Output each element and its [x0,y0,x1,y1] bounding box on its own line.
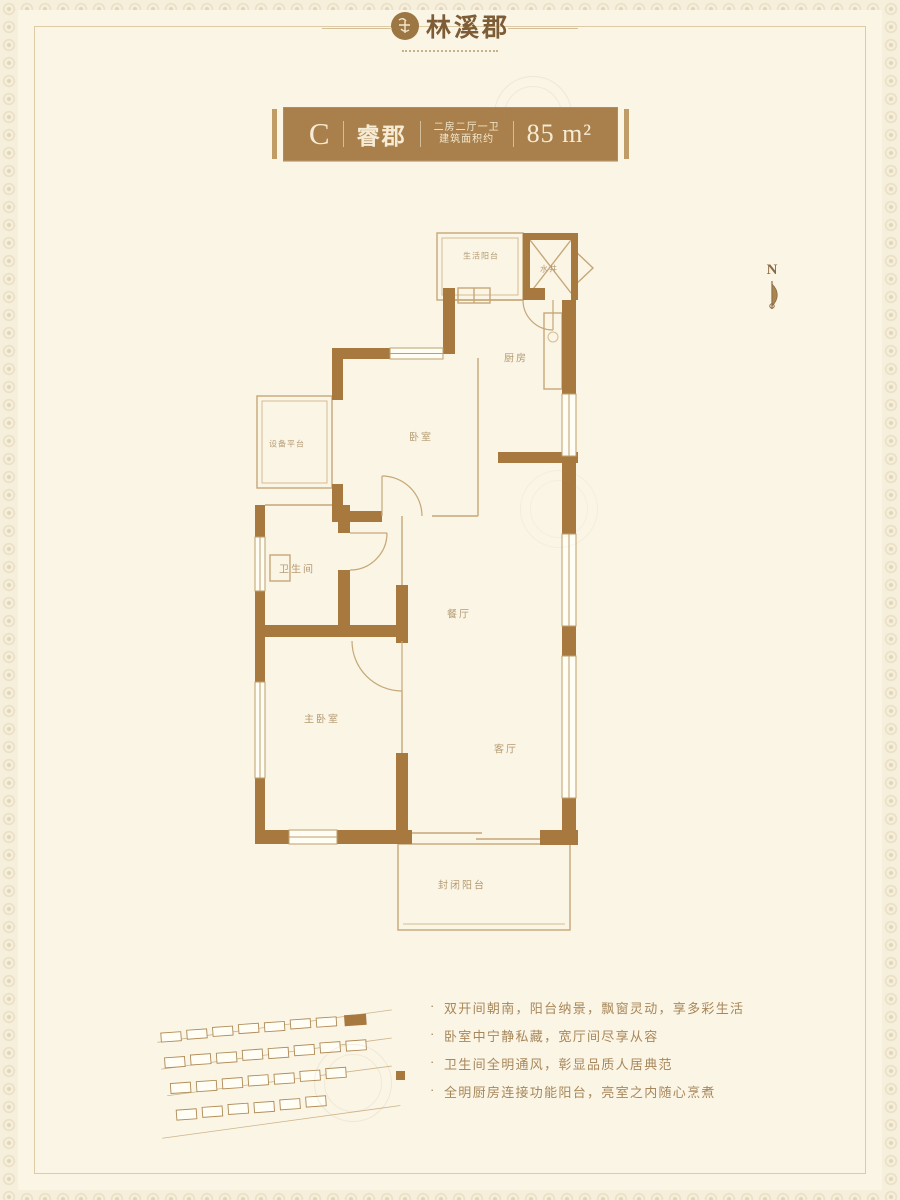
banner-divider [420,121,421,147]
room-label-master-bedroom: 主卧室 [304,711,340,726]
room-label-living: 客厅 [494,741,518,756]
decorative-border-bottom [18,1190,882,1200]
feature-text: 双开间朝南，阳台纳景，飘窗灵动，享多彩生活 [444,998,744,1017]
unit-spec-rooms: 二房二厅一卫 [434,122,500,134]
watermark-stamp [520,470,598,548]
header-rule-left [322,28,392,29]
brand-seal-icon [390,11,420,41]
room-label-bathroom: 卫生间 [279,561,315,576]
brand-caption-line [402,50,498,52]
floorplan-flyer-page: 林溪郡 C 睿郡 二房二厅一卫 建筑面积约 85 m² N [0,0,900,1200]
decorative-border-left [0,0,18,1200]
floor-plan-drawing [240,225,600,935]
feature-item: ·卫生间全明通风，彰显品质人居典范 [430,1054,760,1082]
room-label-equipment-platform: 设备平台 [269,439,305,450]
room-label-enclosed-balcony: 封闭阳台 [438,877,486,892]
brand-name: 林溪郡 [426,8,510,44]
room-label-kitchen: 厨房 [504,350,528,365]
bullet-dot-icon: · [430,998,444,1013]
brand-header: 林溪郡 [0,8,900,52]
bullet-dot-icon: · [430,1054,444,1069]
room-label-bedroom: 卧室 [409,429,433,444]
windows [255,348,576,844]
watermark-stamp [314,1044,392,1122]
feature-text: 卫生间全明通风，彰显品质人居典范 [444,1054,673,1073]
banner-divider [343,121,344,147]
north-label: N [752,262,792,279]
unit-name: 睿郡 [357,117,407,151]
site-plan-highlighted-building [344,1014,367,1027]
feature-item: ·全明厨房连接功能阳台，亮室之内随心烹煮 [430,1082,760,1110]
feature-text: 卧室中宁静私藏，宽厅间尽享从容 [444,1026,659,1045]
bullet-dot-icon: · [430,1026,444,1041]
watermark-stamp [494,76,572,154]
decorative-border-right [882,0,900,1200]
unit-letter: C [309,116,330,152]
feature-text: 全明厨房连接功能阳台，亮室之内随心烹煮 [444,1082,716,1101]
feature-list: ·双开间朝南，阳台纳景，飘窗灵动，享多彩生活 ·卧室中宁静私藏，宽厅间尽享从容 … [430,998,760,1110]
north-indicator: N [752,262,792,316]
unit-spec: 二房二厅一卫 建筑面积约 [434,122,500,146]
room-label-dining: 餐厅 [447,606,471,621]
unit-spec-area-label: 建筑面积约 [434,134,500,146]
feature-item: ·卧室中宁静私藏，宽厅间尽享从容 [430,1026,760,1054]
compass-icon [760,279,784,311]
header-rule-right [508,28,578,29]
room-label-shaft: 水井 [540,264,558,275]
structural-walls [255,233,578,845]
bullet-dot-icon: · [430,1082,444,1097]
balcony-outlines [257,233,593,930]
floor-plan [240,225,600,935]
section-divider-marker [396,1071,405,1080]
feature-item: ·双开间朝南，阳台纳景，飘窗灵动，享多彩生活 [430,998,760,1026]
room-label-life-balcony: 生活阳台 [463,251,499,262]
